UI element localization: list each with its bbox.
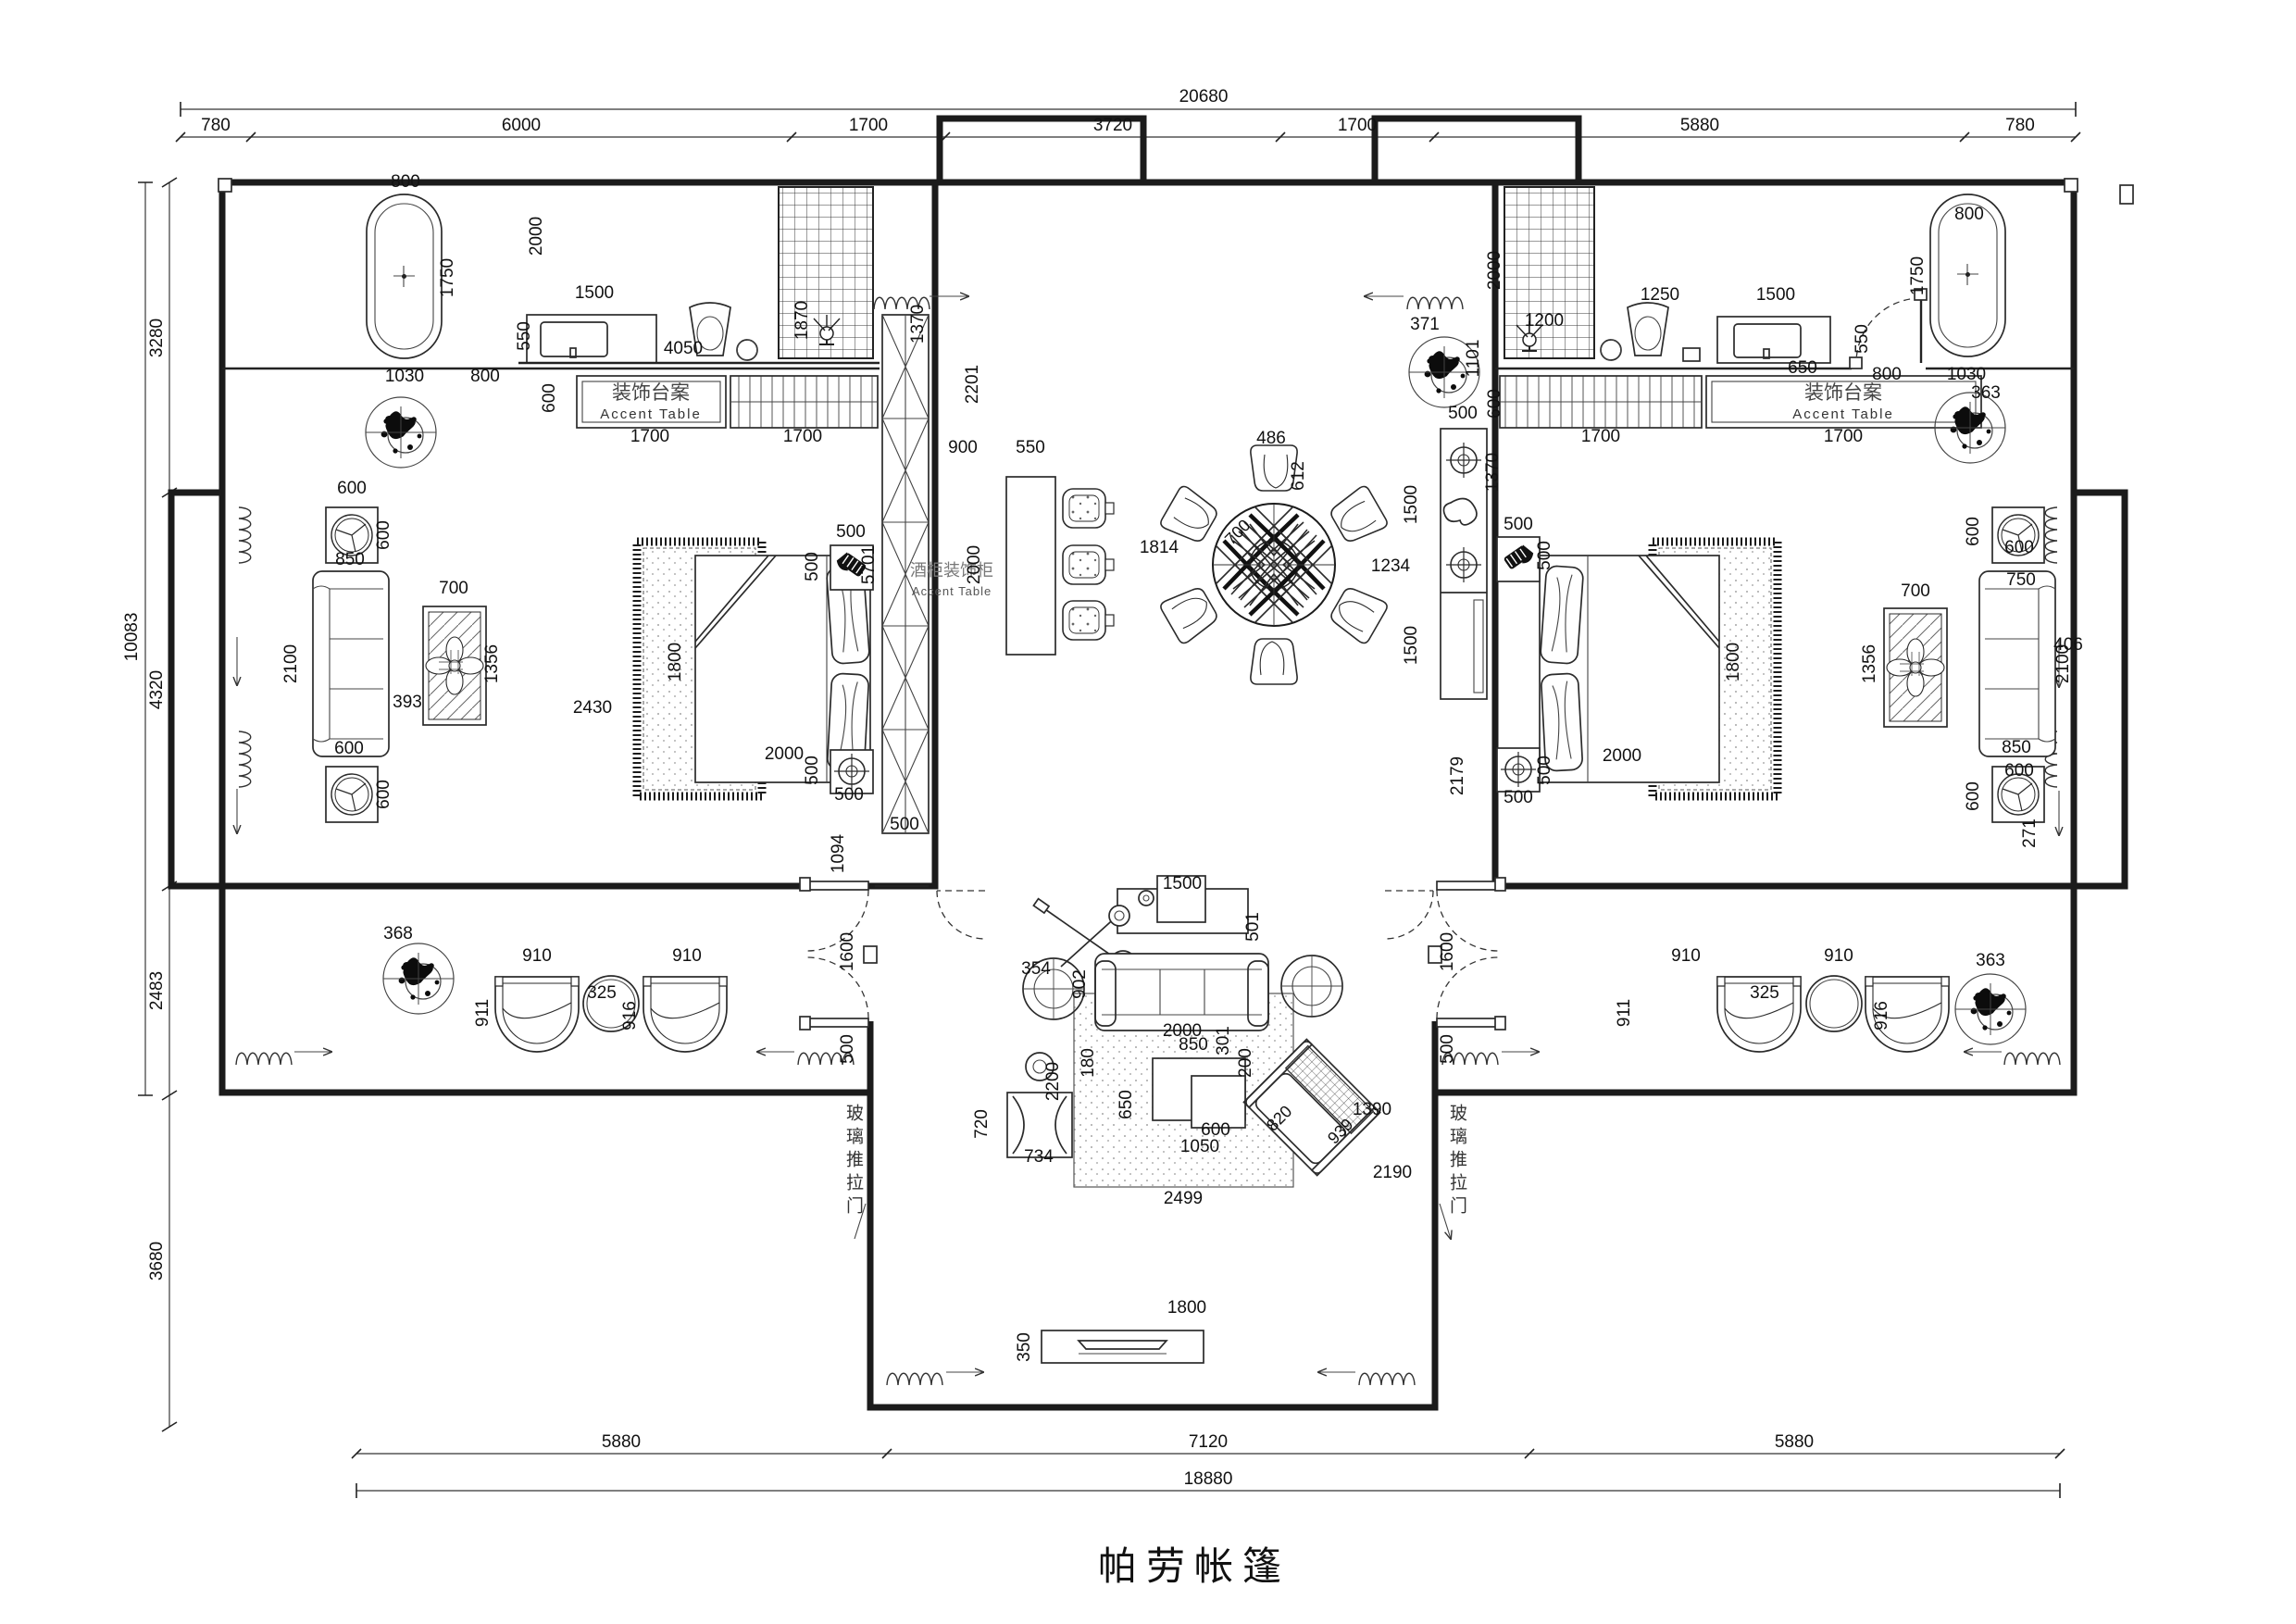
dimension-label: 600 bbox=[374, 780, 393, 809]
dimension-chains bbox=[138, 102, 2080, 1498]
dimension-label: 911 bbox=[1615, 999, 1634, 1027]
plant-left-bath bbox=[366, 397, 436, 468]
dimension-label: 500 bbox=[838, 1034, 857, 1064]
dimension-label: 1700 bbox=[630, 427, 669, 446]
dimension-label: 1870 bbox=[792, 301, 812, 340]
dimension-label: 902 bbox=[1070, 969, 1090, 999]
walls bbox=[171, 119, 2125, 1407]
dimension-label: 1030 bbox=[1947, 365, 1986, 384]
dimension-label: 10083 bbox=[122, 613, 142, 662]
dimension-label: 500 bbox=[1535, 541, 1554, 570]
dimension-label: 350 bbox=[1015, 1332, 1034, 1362]
left-bedroom bbox=[237, 507, 873, 833]
door-leaf bbox=[1437, 881, 1498, 890]
dimension-label: 5880 bbox=[1775, 1432, 1814, 1452]
dimension-label: 900 bbox=[948, 438, 978, 457]
dimension-label: 500 bbox=[1535, 756, 1554, 785]
dimension-label: 600 bbox=[337, 479, 367, 498]
dimension-label: 406 bbox=[2053, 635, 2083, 655]
right-accent-row: 装饰台案 Accent Table bbox=[1500, 376, 1981, 428]
dimension-label: 2200 bbox=[1043, 1062, 1063, 1101]
hall-console bbox=[1006, 477, 1114, 655]
dimension-label: 600 bbox=[334, 739, 364, 758]
dimension-label: 2100 bbox=[281, 644, 301, 683]
dimension-label: 916 bbox=[1872, 1001, 1891, 1031]
pillow bbox=[1540, 566, 1583, 665]
dimension-label: 1750 bbox=[1908, 256, 1928, 295]
dimension-label: 5880 bbox=[1680, 116, 1719, 135]
dimension-label: 1356 bbox=[1860, 644, 1879, 683]
dimension-label: 650 bbox=[1117, 1090, 1136, 1119]
dimension-label: 363 bbox=[1976, 951, 2005, 970]
dimension-label: 720 bbox=[972, 1109, 992, 1139]
dimension-label: 1750 bbox=[438, 258, 457, 297]
dimension-label: 2179 bbox=[1448, 756, 1467, 795]
dimension-label: 500 bbox=[1448, 404, 1478, 423]
dimension-label: 501 bbox=[1243, 912, 1263, 942]
round-table bbox=[1806, 976, 1862, 1031]
dimension-label: 700 bbox=[1901, 581, 1930, 601]
dimension-label: 4050 bbox=[664, 339, 703, 358]
dimension-label: 800 bbox=[470, 367, 500, 386]
dimension-label: 600 bbox=[2004, 761, 2034, 781]
dimension-label: 600 bbox=[1964, 517, 1983, 546]
dimension-labels: 2068078060001700372017005880780100833280… bbox=[122, 87, 2083, 1489]
dimension-label: 7120 bbox=[1189, 1432, 1228, 1452]
left-accent-row: 装饰台案 Accent Table bbox=[577, 376, 878, 428]
dimension-label: 18880 bbox=[1184, 1469, 1233, 1489]
dimension-label: 916 bbox=[620, 1001, 640, 1031]
plant-left-porch bbox=[383, 943, 454, 1014]
dimension-label: 3720 bbox=[1093, 116, 1132, 135]
dimension-label: 850 bbox=[1179, 1035, 1208, 1055]
dimension-label: 200 bbox=[1236, 1048, 1255, 1078]
dimension-label: 910 bbox=[522, 946, 552, 966]
dimension-label: 6000 bbox=[502, 116, 541, 135]
dimension-label: 780 bbox=[2005, 116, 2035, 135]
glass-sliding-door-label-right: 玻璃推拉门 bbox=[1444, 1104, 1469, 1219]
door-leaf bbox=[807, 881, 868, 890]
dimension-label: 850 bbox=[335, 550, 365, 569]
dimension-label: 1814 bbox=[1140, 538, 1179, 557]
dimension-label: 800 bbox=[1872, 365, 1902, 384]
coffee-table bbox=[1884, 608, 1947, 727]
living-area bbox=[855, 876, 1451, 1385]
floor-plan-page: 装饰台案 Accent Table bbox=[0, 0, 2296, 1624]
dimension-label: 393 bbox=[393, 693, 422, 712]
dimension-label: 500 bbox=[836, 522, 866, 542]
dimension-label: 650 bbox=[1788, 358, 1817, 378]
dimension-label: 1094 bbox=[829, 833, 848, 873]
plant-right-porch bbox=[1955, 974, 2026, 1044]
dimension-label: 1200 bbox=[1525, 311, 1564, 331]
dimension-label: 2000 bbox=[965, 545, 984, 584]
dimension-label: 20680 bbox=[1179, 87, 1229, 106]
dimension-label: 2000 bbox=[1485, 251, 1504, 290]
glass-door-leaders bbox=[855, 1204, 1451, 1239]
console-table bbox=[1006, 477, 1055, 655]
dimension-label: 1800 bbox=[666, 643, 685, 681]
wine-cabinet-label-en: Accent Table bbox=[912, 584, 992, 598]
dimension-label: 600 bbox=[2004, 538, 2034, 557]
dimension-label: 500 bbox=[1438, 1034, 1457, 1064]
dimension-label: 750 bbox=[2006, 570, 2036, 590]
dimension-label: 2000 bbox=[765, 744, 804, 764]
dimension-label: 1500 bbox=[1402, 626, 1421, 665]
dimension-label: 600 bbox=[1964, 781, 1983, 811]
dimension-label: 1234 bbox=[1371, 556, 1411, 576]
dimension-label: 1700 bbox=[1581, 427, 1620, 446]
dimension-label: 368 bbox=[383, 924, 413, 943]
dimension-label: 1500 bbox=[1163, 874, 1202, 893]
dimension-label: 550 bbox=[1853, 324, 1872, 354]
dimension-label: 612 bbox=[1289, 461, 1308, 491]
accent-table-label-en: Accent Table bbox=[1792, 406, 1894, 422]
dimension-label: 911 bbox=[473, 999, 493, 1027]
right-bathroom bbox=[1504, 185, 2133, 369]
dimension-label: 600 bbox=[374, 520, 393, 550]
dimension-label: 1370 bbox=[1483, 453, 1503, 492]
floor-plan-drawing: 装饰台案 Accent Table bbox=[0, 0, 2296, 1624]
dimension-label: 2190 bbox=[1373, 1163, 1412, 1182]
tv-console bbox=[1042, 1330, 1204, 1363]
living-sofa bbox=[1095, 954, 1268, 1031]
dimension-label: 354 bbox=[1021, 959, 1051, 979]
dimension-label: 1390 bbox=[1353, 1100, 1391, 1119]
side-table-round bbox=[1281, 956, 1342, 1017]
glass-sliding-door-label-left: 玻璃推拉门 bbox=[841, 1104, 866, 1219]
dimension-label: 1800 bbox=[1724, 643, 1743, 681]
dimension-label: 2483 bbox=[147, 971, 167, 1010]
dimension-label: 500 bbox=[834, 785, 864, 805]
dimension-label: 1030 bbox=[385, 367, 424, 386]
dimension-label: 2201 bbox=[963, 365, 982, 404]
dimension-label: 500 bbox=[1504, 515, 1533, 534]
door-leaf bbox=[807, 1018, 868, 1027]
dimension-label: 1700 bbox=[783, 427, 822, 446]
dimension-label: 1101 bbox=[1464, 340, 1483, 378]
dimension-label: 1250 bbox=[1641, 285, 1679, 305]
dimension-label: 325 bbox=[587, 983, 617, 1003]
shower bbox=[1504, 187, 1594, 358]
dimension-label: 500 bbox=[1504, 788, 1533, 807]
dimension-label: 1050 bbox=[1180, 1137, 1219, 1156]
dimension-label: 600 bbox=[1485, 389, 1504, 418]
dimension-label: 2000 bbox=[1603, 746, 1641, 766]
dimension-label: 700 bbox=[439, 579, 468, 598]
dimension-label: 800 bbox=[1954, 205, 1984, 224]
dimension-label: 363 bbox=[1971, 383, 2001, 403]
dimension-label: 910 bbox=[1824, 946, 1853, 966]
dimension-label: 4320 bbox=[147, 670, 167, 709]
dimension-label: 1600 bbox=[838, 932, 857, 971]
sofa bbox=[1979, 571, 2055, 756]
dimension-label: 780 bbox=[201, 116, 231, 135]
dimension-label: 371 bbox=[1410, 315, 1440, 334]
dimension-label: 1356 bbox=[482, 644, 502, 683]
dimension-label: 1500 bbox=[1756, 285, 1795, 305]
dimension-label: 910 bbox=[672, 946, 702, 966]
dimension-label: 2430 bbox=[573, 698, 612, 718]
dimension-label: 1500 bbox=[1402, 485, 1421, 524]
dimension-label: 1500 bbox=[575, 283, 614, 303]
dimension-label: 500 bbox=[890, 815, 919, 834]
bar-counter bbox=[1441, 429, 1487, 699]
dimension-label: 550 bbox=[515, 321, 534, 351]
accent-table-label-cn: 装饰台案 bbox=[1804, 381, 1882, 404]
dimension-label: 850 bbox=[2002, 738, 2031, 757]
dimension-label: 2499 bbox=[1164, 1189, 1203, 1208]
dimension-label: 1700 bbox=[1824, 427, 1863, 446]
dimension-label: 1370 bbox=[908, 305, 928, 344]
dimension-label: 1600 bbox=[1438, 932, 1457, 971]
dimension-label: 1800 bbox=[1167, 1298, 1206, 1318]
dimension-label: 5880 bbox=[602, 1432, 641, 1452]
coffee-table bbox=[423, 606, 486, 725]
plant-right-bath bbox=[1935, 393, 2005, 463]
dimension-label: 1700 bbox=[849, 116, 888, 135]
dimension-label: 500 bbox=[803, 552, 822, 581]
dimension-label: 5701 bbox=[859, 545, 879, 584]
toilet bbox=[1628, 303, 1668, 356]
dimension-label: 800 bbox=[391, 172, 420, 192]
dimension-label: 3280 bbox=[147, 319, 167, 357]
dimension-label: 500 bbox=[803, 756, 822, 785]
dimension-label: 301 bbox=[1214, 1026, 1233, 1056]
dimension-label: 2000 bbox=[527, 217, 546, 256]
dimension-label: 600 bbox=[540, 383, 559, 413]
dimension-label: 180 bbox=[1079, 1048, 1098, 1078]
dimension-label: 3680 bbox=[147, 1242, 167, 1280]
dimension-label: 271 bbox=[2020, 818, 2040, 848]
drawing-title: 帕劳帐篷 bbox=[1098, 1546, 1291, 1589]
dimension-label: 550 bbox=[1016, 438, 1045, 457]
dimension-label: 325 bbox=[1750, 983, 1779, 1003]
dining-set bbox=[1159, 445, 1390, 684]
dimension-label: 1700 bbox=[1338, 116, 1377, 135]
dimension-label: 910 bbox=[1671, 946, 1701, 966]
dimension-label: 486 bbox=[1256, 429, 1286, 448]
accent-table-label-en: Accent Table bbox=[600, 406, 702, 422]
sofa bbox=[313, 571, 389, 756]
accent-table-label-cn: 装饰台案 bbox=[612, 381, 690, 404]
door-leaf bbox=[1437, 1018, 1498, 1027]
dimension-label: 734 bbox=[1024, 1147, 1054, 1167]
